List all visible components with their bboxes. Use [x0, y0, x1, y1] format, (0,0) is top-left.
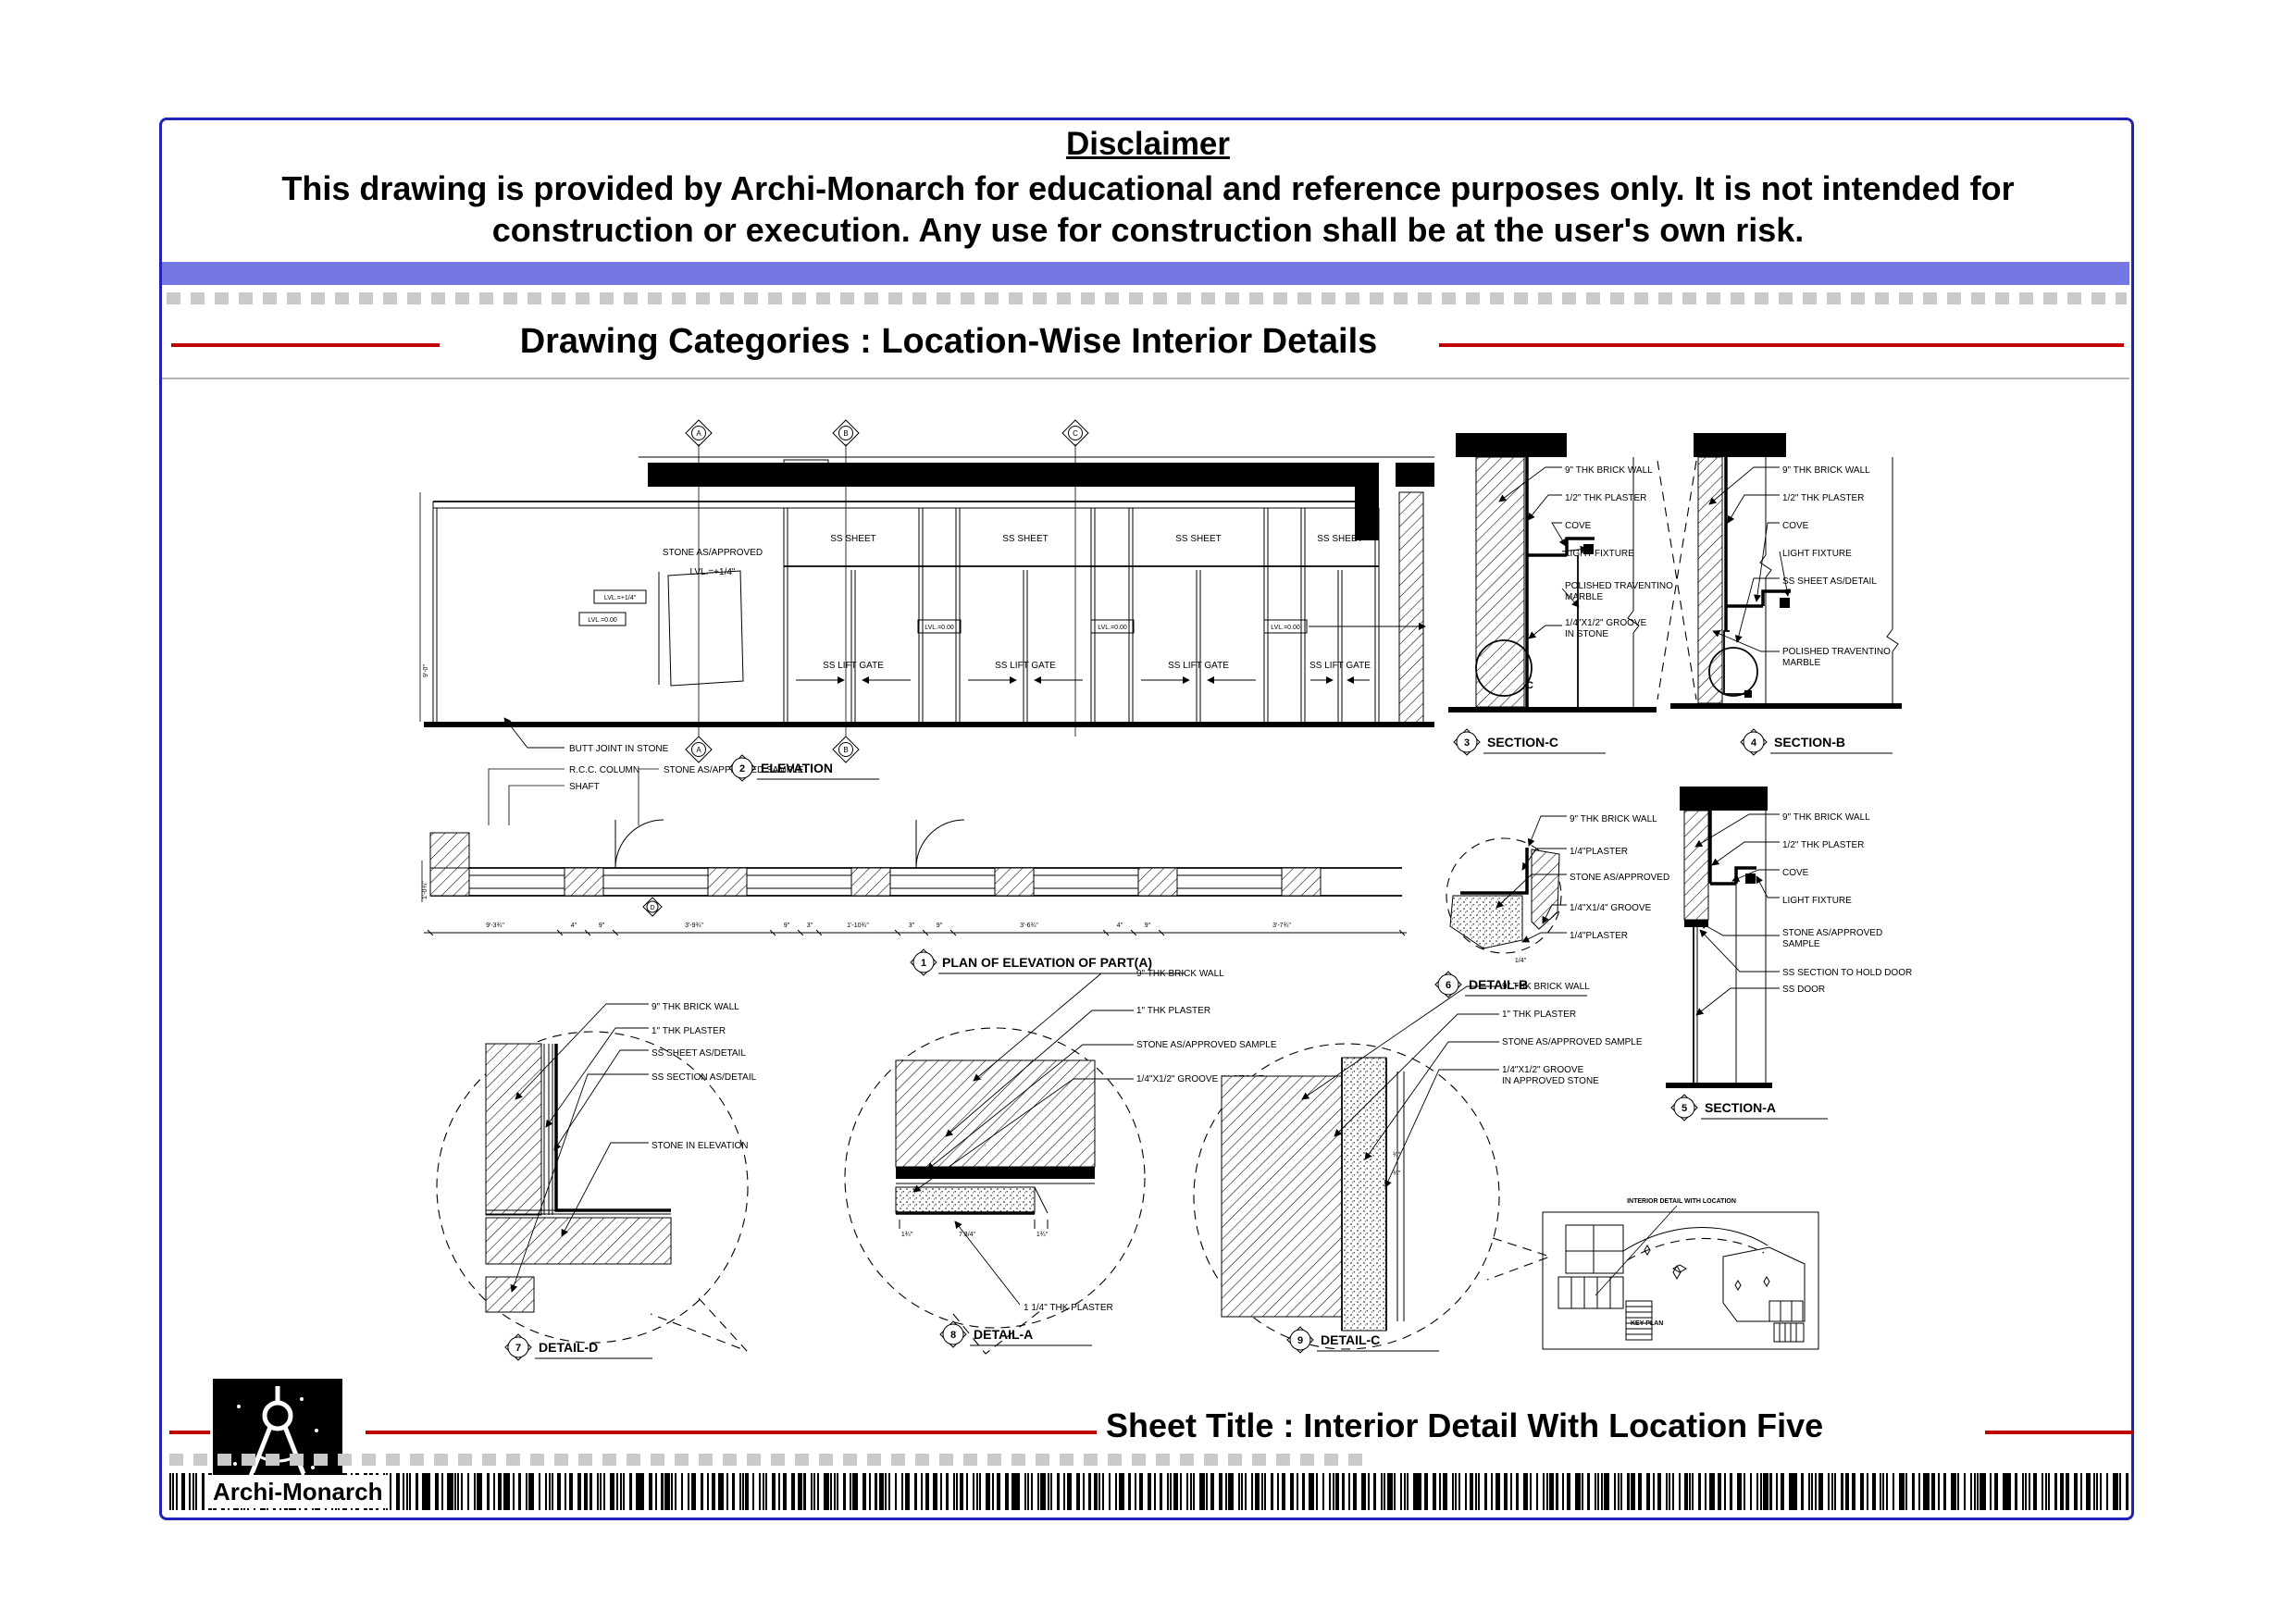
ss-lift-gate-label: SS LIFT GATE	[995, 661, 1056, 671]
callout-label: STONE IN ELEVATION	[652, 1141, 748, 1151]
disclaimer-title: Disclaimer	[0, 126, 2296, 163]
callout-label: 1" THK PLASTER	[1502, 1010, 1576, 1020]
callout-label: COVE	[1782, 521, 1809, 531]
header-divider	[162, 378, 2129, 379]
lvl-label: LVL.=0.00	[1098, 625, 1127, 631]
dim-text: 3'-6¾"	[1020, 923, 1038, 929]
lvl-label: LVL.=0.00	[791, 465, 821, 471]
grid-letter: C	[1073, 429, 1078, 438]
drawing-title: DETAIL-C	[1321, 1332, 1380, 1347]
grid-bubble-b: B	[833, 420, 859, 446]
drawing-title: DETAIL-A	[974, 1327, 1033, 1342]
callout-label: SHAFT	[569, 782, 600, 792]
section-b-drawing: 9" THK BRICK WALL 1/2" THK PLASTER COVE …	[1652, 416, 1957, 763]
drawing-number: 3	[1464, 737, 1470, 749]
callout-label: SS SHEET AS/DETAIL	[1782, 576, 1877, 587]
elevation-grid-lines	[699, 444, 1075, 737]
section-b-labels: 9" THK BRICK WALL 1/2" THK PLASTER COVE …	[1709, 465, 1891, 668]
key-plan-caption: INTERIOR DETAIL WITH LOCATION	[1627, 1198, 1736, 1205]
grid-letter: A	[696, 429, 701, 438]
ss-sheet-label: SS SHEET	[1175, 534, 1221, 544]
dim-text: 3'-7¾"	[1272, 923, 1291, 929]
key-plan-graphic	[1558, 1225, 1805, 1342]
callout-label: 1/4"X1/2" GROOVE	[1565, 618, 1647, 628]
ss-sheet-label: SS SHEET	[830, 534, 875, 544]
key-plan-label: KEY PLAN	[1631, 1320, 1663, 1327]
section-c-labels: 9" THK BRICK WALL 1/2" THK PLASTER COVE …	[1499, 465, 1673, 639]
grid-bubble-a: A	[686, 420, 712, 446]
drawing-number: 2	[739, 763, 745, 774]
elevation-panel-2: SS SHEET SS LIFT GATE	[956, 508, 1095, 722]
callout-label: SS DOOR	[1782, 985, 1825, 995]
disclaimer-line-1: This drawing is provided by Archi-Monarc…	[0, 169, 2296, 208]
grid-letter: B	[843, 746, 848, 754]
dim-text: 1¾"	[1036, 1232, 1049, 1238]
callout-label: 1/2" THK PLASTER	[1565, 493, 1646, 503]
callout-label: 9" THK BRICK WALL	[1782, 812, 1870, 823]
callout-label: LIGHT FIXTURE	[1565, 549, 1634, 559]
callout-label: 1/2" THK PLASTER	[1782, 840, 1864, 850]
detail-marker-letter: C	[1526, 680, 1533, 691]
dim-text: 9"	[937, 923, 943, 929]
detail-a-title: 8 DETAIL-A	[940, 1321, 1092, 1347]
callout-label: R.C.C. COLUMN	[569, 765, 639, 775]
section-b-title: 4 SECTION-B	[1741, 729, 1893, 755]
footer-redline-right	[1985, 1431, 2133, 1434]
elevation-title: 2 ELEVATION	[729, 755, 879, 781]
dim-text: 9"	[1145, 923, 1151, 929]
callout-label: IN STONE	[1565, 629, 1608, 639]
callout-label: 1/4"PLASTER	[1570, 931, 1628, 941]
marker-letter: D	[650, 905, 654, 911]
callout-label: 9" THK BRICK WALL	[1570, 814, 1657, 824]
callout-label: LIGHT FIXTURE	[1782, 549, 1852, 559]
callout-label: LIGHT FIXTURE	[1782, 896, 1852, 906]
key-plan-drawing: INTERIOR DETAIL WITH LOCATION	[1538, 1192, 1830, 1358]
category-title: Drawing Categories : Location-Wise Inter…	[398, 322, 1499, 362]
disclaimer-line-2: construction or execution. Any use for c…	[0, 211, 2296, 250]
dash-strip-top	[167, 292, 2127, 304]
callout-label: SAMPLE	[1782, 939, 1820, 949]
elevation-callouts: BUTT JOINT IN STONE R.C.C. COLUMN SHAFT …	[489, 718, 804, 825]
drawing-number: 9	[1297, 1335, 1303, 1346]
dim-text: 4"	[571, 923, 577, 929]
callout-label: MARBLE	[1782, 658, 1820, 668]
elevation-beam	[639, 457, 1434, 725]
dim-text: 3'-9¾"	[685, 923, 703, 929]
callout-label: 1 1/4" THK PLASTER	[1024, 1303, 1113, 1313]
lvl-plus-box: LVL.=+1/4"	[604, 595, 637, 601]
drawing-title: SECTION-C	[1487, 735, 1558, 750]
dim-text: 1/4"	[1515, 958, 1527, 964]
callout-label: 1/4"PLASTER	[1570, 847, 1628, 857]
footer-redline-mid	[366, 1431, 1097, 1434]
callout-label: IN APPROVED STONE	[1502, 1076, 1599, 1086]
category-redline-right	[1439, 343, 2124, 347]
elevation-panel-3: SS SHEET SS LIFT GATE	[1129, 508, 1268, 722]
ss-lift-gate-label: SS LIFT GATE	[823, 661, 884, 671]
callout-label: SS SHEET AS/DETAIL	[652, 1048, 746, 1059]
callout-label: COVE	[1565, 521, 1592, 531]
dim-text: 1¾"	[901, 1232, 913, 1238]
drawing-number: 7	[515, 1343, 521, 1354]
callout-label: 9" THK BRICK WALL	[1502, 982, 1590, 992]
callout-label: POLISHED TRAVENTINO	[1782, 647, 1891, 657]
dim-text: 9'-0"	[423, 664, 429, 677]
dim-text: 1'-10¾"	[847, 923, 869, 929]
callout-label: MARBLE	[1565, 592, 1603, 602]
callout-label: 9" THK BRICK WALL	[1782, 465, 1870, 476]
purple-divider-bar	[162, 262, 2129, 285]
dim-text: 9"	[784, 923, 790, 929]
callout-label: 9" THK BRICK WALL	[1565, 465, 1653, 476]
lvl-label: LVL.=0.00	[925, 625, 954, 631]
callout-label: STONE AS/APPROVED	[1782, 928, 1882, 938]
callout-label: BUTT JOINT IN STONE	[569, 744, 669, 754]
callout-label: SS SECTION TO HOLD DOOR	[1782, 968, 1912, 978]
stone-label: STONE AS/APPROVED	[663, 548, 763, 558]
section-a-labels: 9" THK BRICK WALL 1/2" THK PLASTER COVE …	[1695, 812, 1912, 1015]
drawing-sheet: Disclaimer This drawing is provided by A…	[0, 0, 2296, 1623]
callout-label: 1" THK PLASTER	[652, 1026, 726, 1036]
callout-label: 9" THK BRICK WALL	[652, 1002, 739, 1012]
elevation-panel-1: SS SHEET SS LIFT GATE	[784, 508, 923, 722]
drawing-title: SECTION-B	[1774, 735, 1845, 750]
detail-b-labels: 9" THK BRICK WALL 1/4"PLASTER STONE AS/A…	[1496, 814, 1669, 964]
elevation-drawing: A B C LVL.=0.00 STONE AS/APPROVED	[416, 390, 1439, 846]
ss-lift-gate-label: SS LIFT GATE	[1309, 661, 1371, 671]
ss-sheet-label: SS SHEET	[1317, 534, 1362, 544]
detail-d-drawing: 9" THK BRICK WALL 1" THK PLASTER SS SHEE…	[421, 988, 819, 1369]
detail-a-dims: 1¾" 7 3/4" 1¾"	[900, 1220, 1049, 1238]
dim-text: 9'-3¾"	[486, 923, 504, 929]
lvl-label: LVL.=0.00	[1271, 625, 1300, 631]
elevation-left-bay: STONE AS/APPROVED LVL.=+1/4" LVL.=+1/4" …	[433, 502, 763, 722]
callout-label: 1/4"X1/2" GROOVE	[1502, 1065, 1584, 1075]
dim-text: 3"	[807, 923, 813, 929]
grid-letter: B	[843, 429, 848, 438]
callout-label: STONE AS/APPROVED SAMPLE	[1502, 1037, 1643, 1047]
lvl-zero-box: LVL.=0.00	[588, 617, 617, 624]
sheet-title: Sheet Title : Interior Detail With Locat…	[1106, 1406, 1823, 1445]
callout-label: STONE AS/APPROVED	[1570, 873, 1669, 883]
dim-text: ¾"	[1393, 1171, 1401, 1177]
ss-sheet-label: SS SHEET	[1002, 534, 1048, 544]
grid-letter: A	[696, 746, 701, 754]
dim-text: 1'-0¾"	[422, 881, 428, 899]
section-c-drawing: C 9" THK BRICK WALL 1/2" THK PLASTER COV…	[1448, 416, 1675, 763]
elevation-bottom-bubbles: A B	[686, 737, 859, 762]
dim-text: 4"	[1117, 923, 1123, 929]
section-a-drawing: 9" THK BRICK WALL 1/2" THK PLASTER COVE …	[1666, 773, 1962, 1129]
callout-label: 1/2" THK PLASTER	[1782, 493, 1864, 503]
dim-text: 9"	[599, 923, 605, 929]
callout-label: SS SECTION AS/DETAIL	[652, 1072, 757, 1083]
ss-lift-gate-label: SS LIFT GATE	[1168, 661, 1229, 671]
elevation-lvl-boxes: LVL.=0.00 LVL.=0.00 LVL.=0.00	[918, 620, 1425, 633]
drawing-title: ELEVATION	[761, 761, 833, 775]
brand-name: Archi-Monarch	[205, 1475, 390, 1508]
drawing-number: 8	[950, 1330, 956, 1341]
plan-wall-band	[430, 820, 1402, 896]
plan-detail-marker: D	[643, 898, 662, 916]
dash-strip-bottom	[169, 1454, 1368, 1466]
elevation-height-dim: 9'-0"	[420, 492, 429, 722]
callout-label: 1/4"X1/4" GROOVE	[1570, 903, 1652, 913]
section-c-title: 3 SECTION-C	[1454, 729, 1606, 755]
section-a-title: 5 SECTION-A	[1671, 1095, 1828, 1121]
grid-bubble-c: C	[1062, 420, 1088, 446]
callout-label: COVE	[1782, 868, 1809, 878]
drawing-title: SECTION-A	[1705, 1100, 1776, 1115]
dim-text: 3"	[909, 923, 915, 929]
drawing-title: DETAIL-D	[539, 1340, 598, 1355]
barcode	[169, 1473, 2129, 1510]
drawing-number: 4	[1751, 737, 1757, 749]
footer-redline-stub	[169, 1431, 210, 1434]
